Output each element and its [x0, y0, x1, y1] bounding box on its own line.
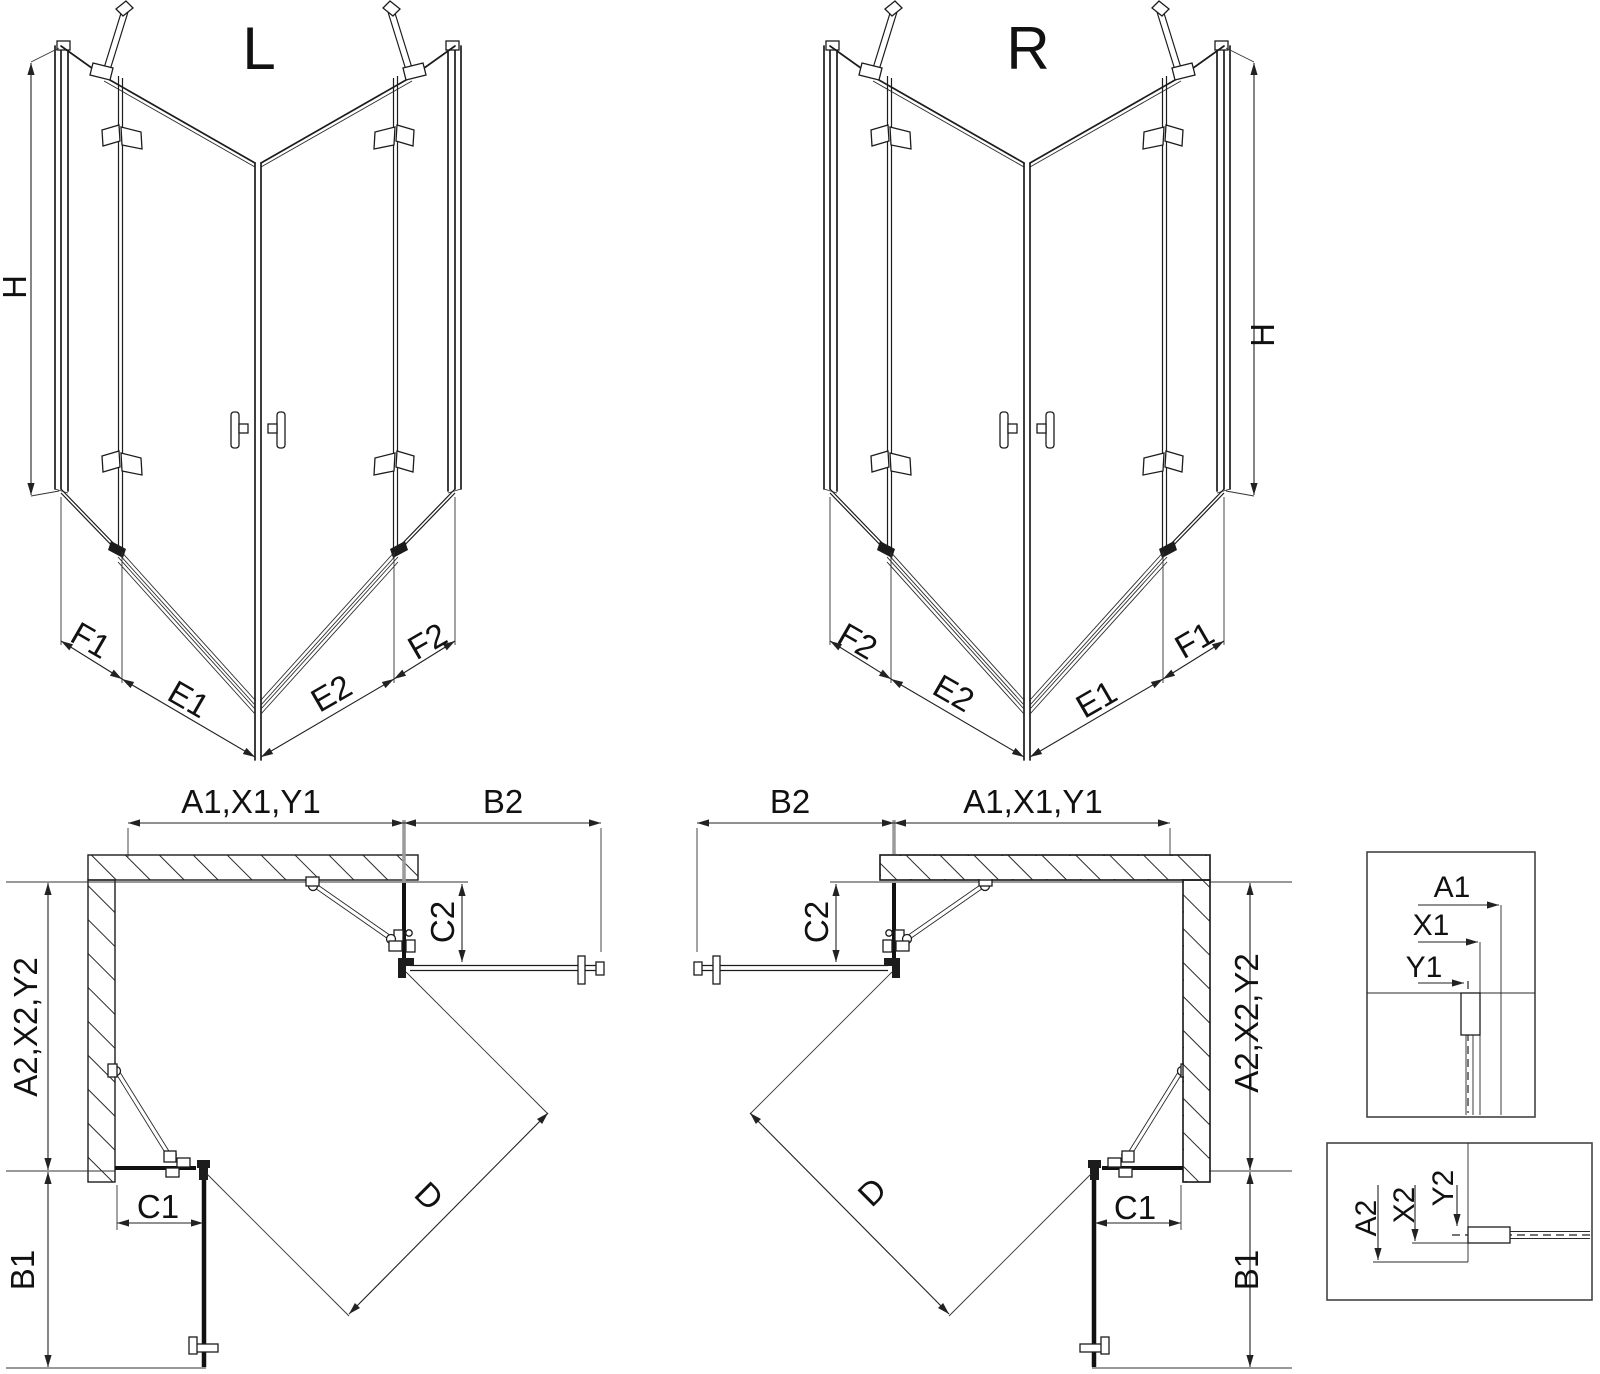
dim-label-e2-right: E2: [927, 667, 980, 719]
dim-label-c2-leftplan: C2: [424, 901, 461, 943]
dim-label-d-leftplan: D: [408, 1174, 451, 1217]
technical-drawing-page: L H F1 E1 E2 F2 R H F2 E2 E1 F1 A1,X1,Y1…: [0, 0, 1600, 1374]
dim-label-c1-leftplan: C1: [137, 1188, 179, 1225]
left-plan-view: [6, 820, 604, 1368]
dim-label-c2-rightplan: C2: [798, 901, 835, 943]
dim-label-f1-left: F1: [65, 614, 117, 665]
detail-label-a2: A2: [1350, 1200, 1383, 1237]
detail-label-x1: X1: [1413, 909, 1450, 942]
right-plan-view: [694, 820, 1292, 1368]
detail-label-y2: Y2: [1427, 1170, 1460, 1207]
dim-label-e1-right: E1: [1070, 673, 1123, 725]
dim-label-f2-right: F2: [832, 615, 884, 666]
dim-label-f1-right: F1: [1168, 614, 1220, 665]
labels-detail-bottom: A2 X2 Y2: [1350, 1170, 1460, 1237]
detail-label-x2: X2: [1388, 1187, 1421, 1224]
dim-label-a2x2y2-rightplan: A2,X2,Y2: [1228, 953, 1265, 1092]
dim-label-f2-left: F2: [401, 615, 453, 666]
dim-label-height-left: H: [0, 275, 33, 299]
right-view-title: R: [1006, 15, 1049, 82]
dim-label-b1-rightplan: B1: [1228, 1250, 1265, 1290]
labels-right-3d: R H F2 E2 E1 F1: [832, 15, 1281, 725]
dim-label-c1-rightplan: C1: [1114, 1189, 1156, 1226]
shower-enclosure-diagram: L H F1 E1 E2 F2 R H F2 E2 E1 F1 A1,X1,Y1…: [0, 0, 1600, 1374]
dim-label-d-rightplan: D: [850, 1170, 893, 1213]
detail-label-a1: A1: [1434, 871, 1471, 904]
dim-label-e2-left: E2: [305, 667, 358, 719]
dim-label-a2x2y2-leftplan: A2,X2,Y2: [7, 957, 44, 1096]
left-view-title: L: [242, 15, 275, 82]
dim-label-height-right: H: [1244, 323, 1281, 347]
labels-detail-top: A1 X1 Y1: [1406, 871, 1471, 984]
dim-label-b2-rightplan: B2: [770, 783, 810, 820]
dim-label-b2-leftplan: B2: [483, 783, 523, 820]
dim-label-a1x1y1-leftplan: A1,X1,Y1: [181, 783, 320, 820]
dim-label-e1-left: E1: [162, 673, 215, 725]
dim-label-b1-leftplan: B1: [4, 1250, 41, 1290]
detail-label-y1: Y1: [1406, 951, 1443, 984]
dim-label-a1x1y1-rightplan: A1,X1,Y1: [963, 783, 1102, 820]
